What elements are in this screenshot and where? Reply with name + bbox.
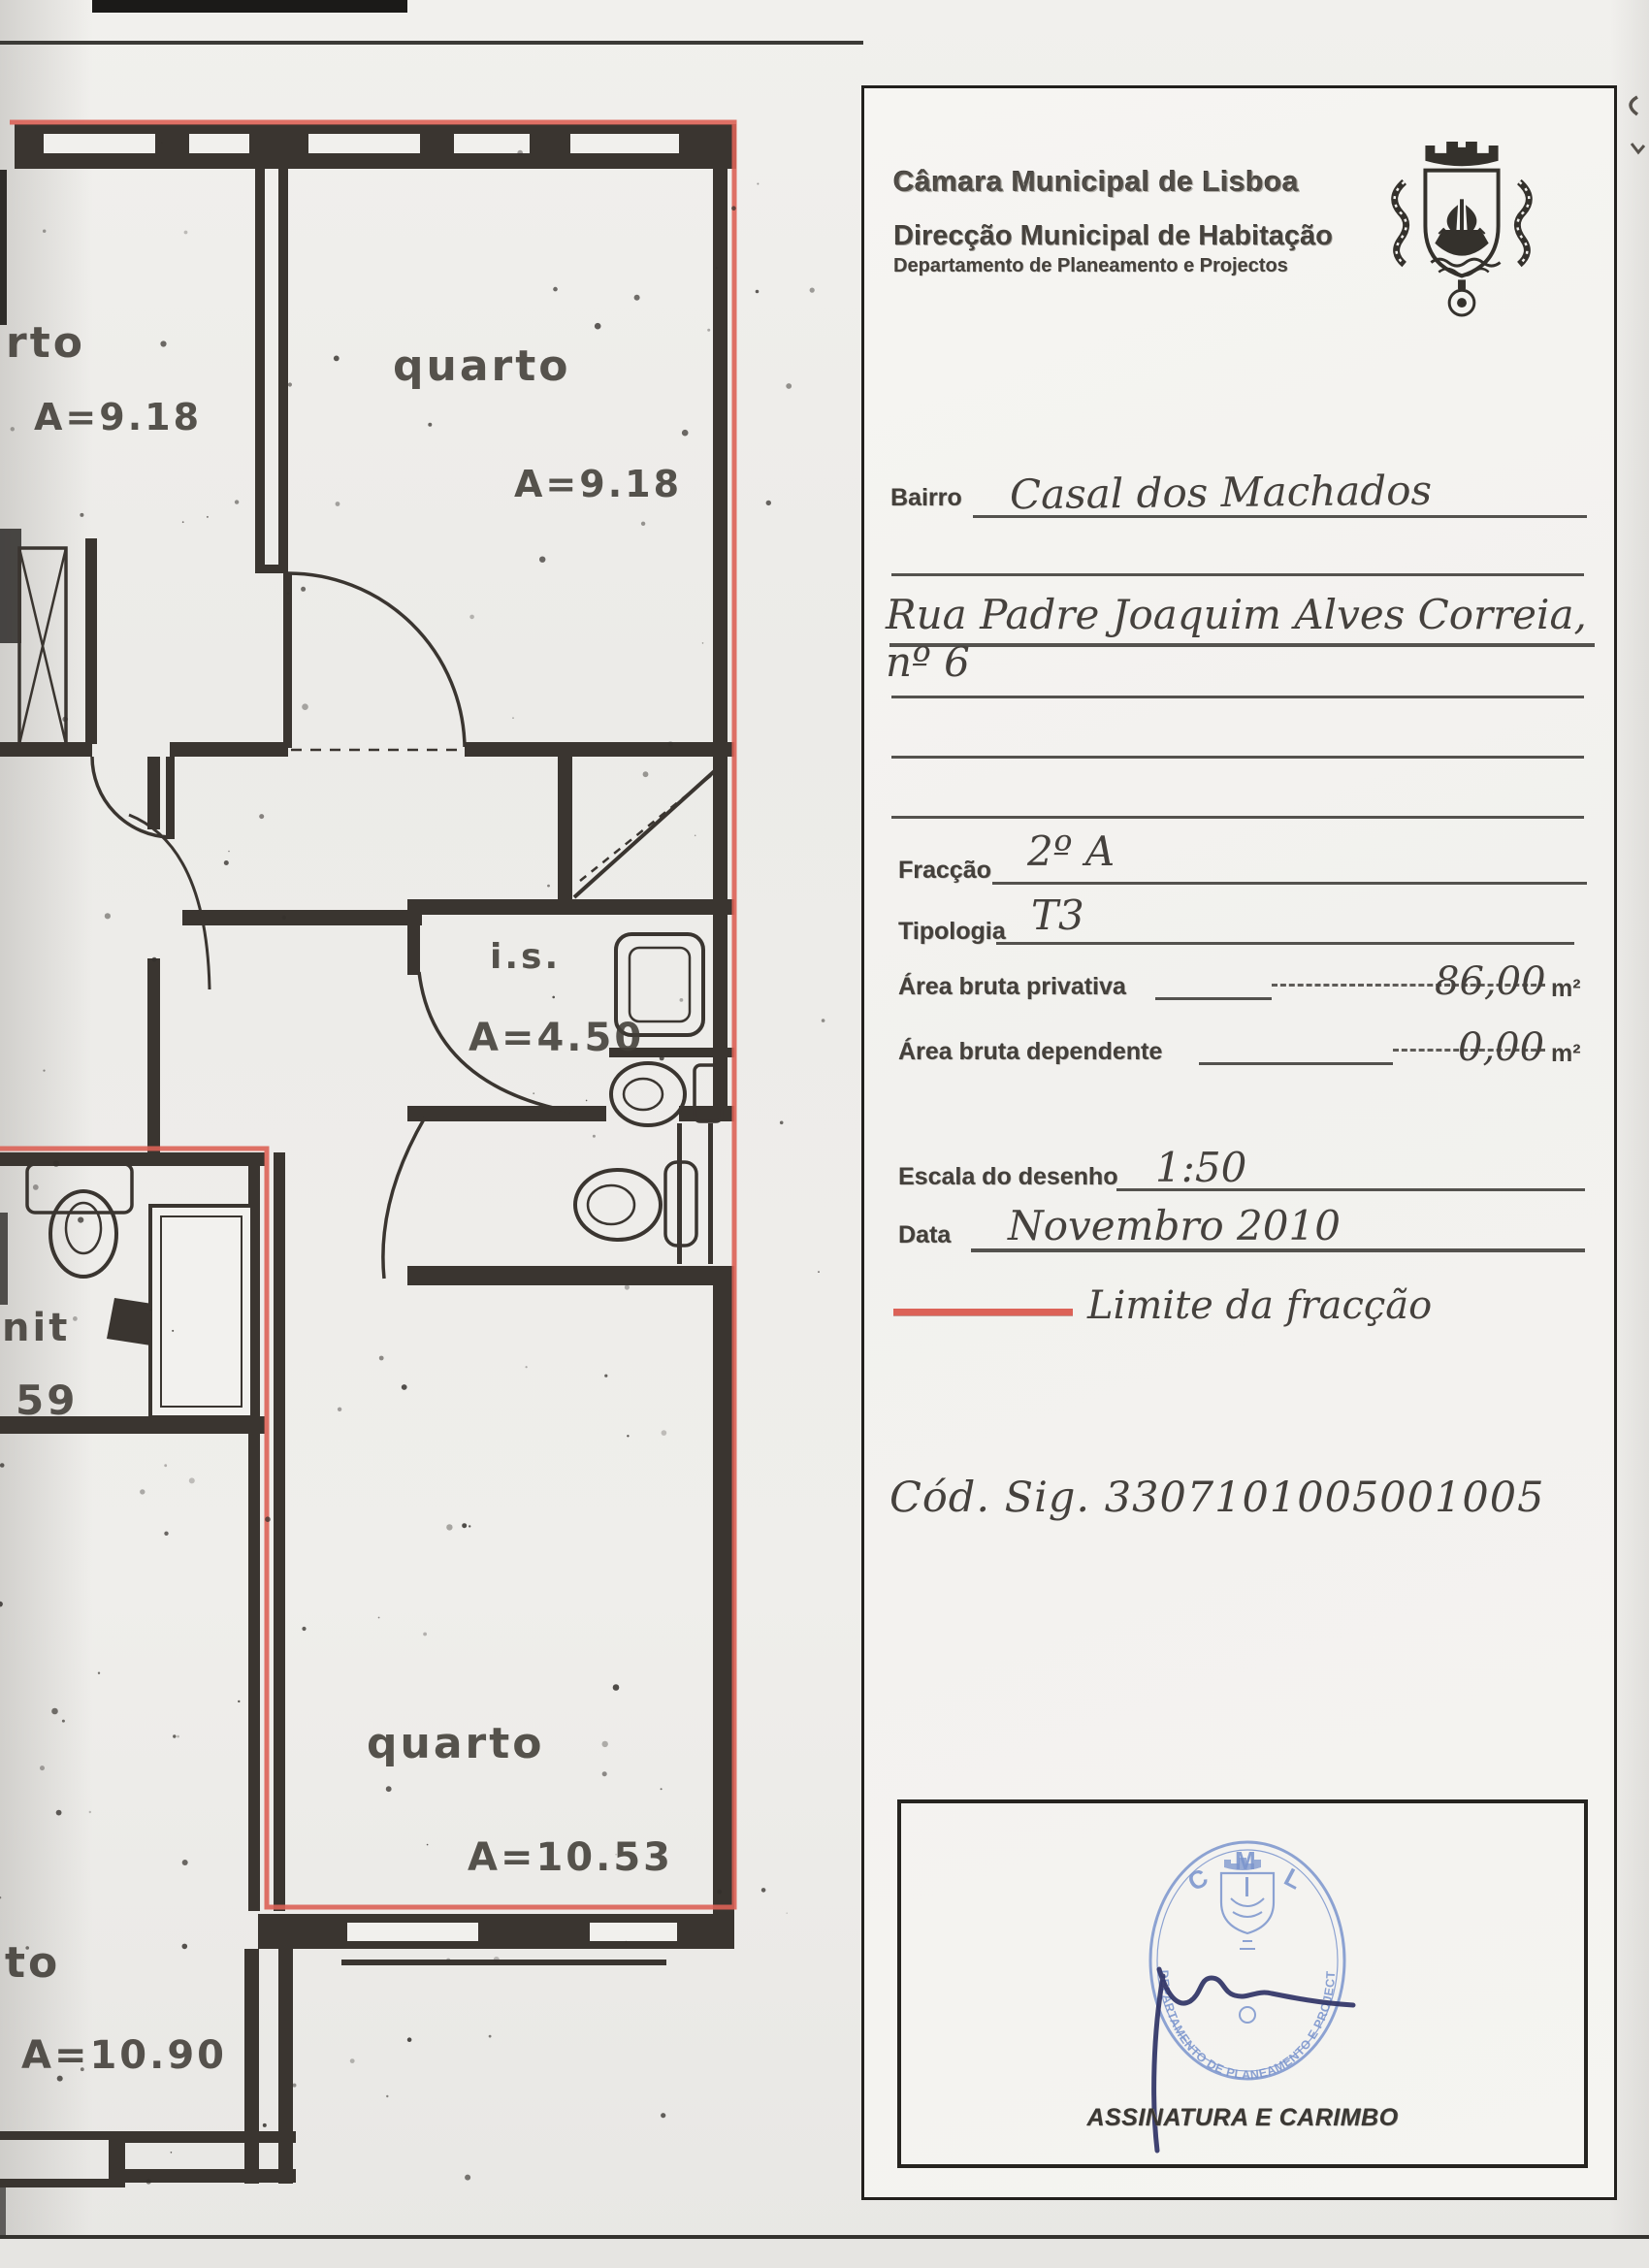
door-arc — [383, 1118, 425, 1279]
counter-fixture — [27, 1164, 132, 1213]
door-arc — [129, 815, 210, 989]
room-label-cut: to — [5, 1938, 60, 1988]
room-label: quarto — [367, 1719, 544, 1768]
org-direction: Direcção Municipal de Habitação — [893, 220, 1333, 252]
room-area-label-cut: 59 — [16, 1377, 78, 1424]
area-dependente-line — [1199, 1062, 1393, 1065]
area-bruta-dependente-label: Área bruta dependente — [898, 1038, 1162, 1066]
room-label: rto — [6, 318, 85, 368]
area-privativa-value: 86,00 — [1435, 959, 1546, 1004]
closet-fixture — [150, 1206, 252, 1417]
area-privativa-unit: m² — [1551, 975, 1581, 1003]
area-dependente-unit: m² — [1551, 1040, 1581, 1068]
tipologia-value: T3 — [1031, 891, 1084, 939]
room-area-label: A=9.18 — [514, 463, 682, 505]
door-arc — [287, 573, 465, 747]
address-line — [889, 643, 1595, 647]
room-label: quarto — [393, 341, 570, 391]
area-dependente-value: 0,00 — [1458, 1025, 1544, 1070]
room-area-label: A=10.53 — [468, 1835, 673, 1880]
fraccao-line — [992, 882, 1587, 885]
blank-line — [891, 573, 1584, 576]
washbasin-fixture — [611, 1063, 685, 1125]
fraccao-value: 2º A — [1027, 827, 1115, 875]
data-label: Data — [898, 1221, 951, 1249]
fraccao-label: Fracção — [898, 857, 991, 885]
room-area-label: A=9.18 — [34, 396, 202, 438]
fraction-limit-swatch — [893, 1309, 1073, 1315]
pen-mark-c — [1631, 97, 1637, 114]
org-department: Departamento de Planeamento e Projectos — [893, 255, 1288, 277]
fraction-limit-outline — [0, 122, 734, 1907]
tipologia-line — [996, 942, 1574, 945]
tipologia-label: Tipologia — [898, 918, 1006, 946]
fraction-limit-label: Limite da fracção — [1087, 1283, 1432, 1328]
data-value: Novembro 2010 — [1008, 1202, 1341, 1249]
lisbon-coat-of-arms-icon — [1375, 127, 1548, 326]
room-area-label: A=10.90 — [21, 2033, 227, 2078]
bairro-value: Casal dos Machados — [1010, 467, 1433, 519]
org-name: Câmara Municipal de Lisboa — [893, 166, 1299, 199]
escala-value: 1:50 — [1155, 1144, 1246, 1191]
title-block-panel: Câmara Municipal de Lisboa Direcção Muni… — [861, 85, 1617, 2200]
plan-fixtures — [19, 548, 722, 1417]
room-label-cut: nit — [2, 1306, 70, 1350]
address-value: Rua Padre Joaquim Alves Correia, nº 6 — [886, 591, 1614, 686]
assinatura-caption: ASSINATURA E CARIMBO — [897, 2104, 1588, 2132]
room-area-label: A=4.50 — [469, 1016, 644, 1060]
scanned-page: rto A=9.18 quarto A=9.18 i.s. A=4.50 nit… — [0, 0, 1649, 2268]
area-bruta-privativa-label: Área bruta privativa — [898, 973, 1126, 1001]
pen-mark-check — [1632, 144, 1644, 152]
room-label: i.s. — [490, 937, 561, 977]
bairro-label: Bairro — [890, 484, 962, 512]
blank-line — [891, 816, 1584, 819]
cod-sig-value: Cód. Sig. 3307101005001005 — [889, 1474, 1544, 1522]
escala-label: Escala do desenho — [898, 1163, 1117, 1191]
area-privativa-line — [1155, 997, 1272, 1000]
blank-line — [891, 756, 1584, 759]
blank-line — [891, 696, 1584, 698]
